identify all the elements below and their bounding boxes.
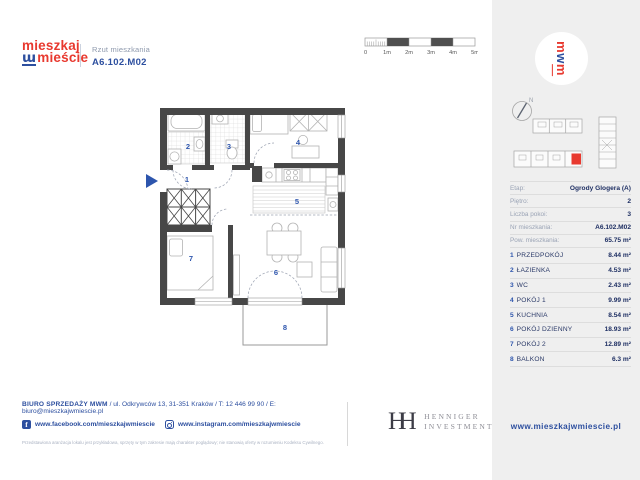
brand-w-glyph: ɯ	[22, 53, 36, 66]
room-number: 5	[295, 197, 299, 206]
room-row-number: 5	[510, 312, 514, 319]
developer-name-line1: HENNIGER	[424, 412, 494, 422]
room-number: 1	[185, 175, 189, 184]
room-row-number: 1	[510, 252, 514, 259]
hall-wardrobe	[167, 189, 210, 225]
room-row-number: 7	[510, 341, 514, 348]
sidebar: mwm N	[492, 0, 640, 480]
info-row: Liczba pokoi:3	[510, 208, 631, 221]
scale-bar: 0 1m 2m 3m 4m 5m	[362, 36, 478, 58]
page: mieszkaj ɯmieście Rzut mieszkania A6.102…	[0, 0, 640, 480]
room-row-number: 8	[510, 356, 514, 363]
henniger-monogram: HH	[388, 409, 417, 434]
room-row-number: 3	[510, 282, 514, 289]
scale-label: 1m	[383, 50, 391, 56]
developer-name: HENNIGER INVESTMENT	[424, 412, 494, 431]
mwm-letter-w: w	[554, 53, 569, 64]
info-label: Piętro:	[510, 198, 528, 205]
mwm-letter-m1: m	[554, 41, 569, 53]
room-row-area: 18.93 m²	[605, 326, 631, 333]
facebook-icon[interactable]: f	[22, 420, 31, 429]
mwm-logo: mwm	[535, 32, 588, 85]
room-number: 2	[186, 142, 190, 151]
room-row-name: ŁAZIENKA	[517, 267, 609, 274]
room-row-area: 8.44 m²	[608, 252, 631, 259]
compass-icon: N	[513, 98, 534, 121]
facebook-link[interactable]: www.facebook.com/mieszkajwmiescie	[35, 421, 155, 428]
location-map: N	[497, 90, 633, 174]
rooms-table: 1PRZEDPOKÓJ8.44 m²2ŁAZIENKA4.53 m²3WC2.4…	[510, 249, 631, 367]
room-row: 8BALKON6.3 m²	[510, 352, 631, 367]
scale-bar-labels: 0 1m 2m 3m 4m 5m	[364, 50, 478, 56]
instagram-icon[interactable]	[165, 420, 174, 429]
room-row: 3WC2.43 m²	[510, 279, 631, 294]
room-number: 6	[274, 268, 278, 277]
info-label: Liczba pokoi:	[510, 211, 547, 218]
footer-divider	[347, 402, 348, 446]
brand-logo-line2: ɯmieście	[22, 52, 88, 66]
website-link[interactable]: www.mieszkajwmiescie.pl	[492, 422, 640, 431]
room-row-area: 4.53 m²	[608, 267, 631, 274]
info-row: Piętro:2	[510, 195, 631, 208]
social-links: f www.facebook.com/mieszkajwmiescie www.…	[22, 420, 301, 429]
apartment-location-marker	[572, 154, 582, 165]
room-row: 6POKÓJ DZIENNY18.93 m²	[510, 323, 631, 338]
info-row: Nr mieszkania:A6.102.M02	[510, 222, 631, 235]
room-number: 3	[227, 142, 231, 151]
building-plan-minimap	[514, 117, 616, 168]
room-number: 8	[283, 323, 287, 332]
room-row-number: 4	[510, 297, 514, 304]
header-divider	[80, 44, 81, 67]
instagram-link[interactable]: www.instagram.com/mieszkajwmiescie	[178, 421, 301, 428]
developer-name-line2: INVESTMENT	[424, 422, 494, 432]
floor-plan: 1 2 3 4 5 6 7 8	[128, 90, 362, 360]
entrance-arrow-icon	[146, 174, 158, 188]
info-value: 3	[627, 211, 631, 218]
info-table: Etap:Ogrody Glogera (A)Piętro:2Liczba po…	[510, 181, 631, 248]
info-row: Etap:Ogrody Glogera (A)	[510, 182, 631, 195]
compass-north-label: N	[529, 98, 533, 104]
info-label: Nr mieszkania:	[510, 224, 552, 231]
room-row: 7POKÓJ 212.89 m²	[510, 338, 631, 353]
info-value: 2	[627, 198, 631, 205]
info-value: 65.75 m²	[605, 237, 631, 244]
room-row: 1PRZEDPOKÓJ8.44 m²	[510, 249, 631, 264]
scale-label: 4m	[449, 50, 457, 56]
mwm-logo-letters: mwm	[557, 41, 566, 76]
room-row-name: WC	[517, 282, 609, 289]
room-row: 2ŁAZIENKA4.53 m²	[510, 264, 631, 279]
room-row-area: 9.99 m²	[608, 297, 631, 304]
mwm-letter-m2: m	[552, 64, 569, 76]
room-row-name: POKÓJ DZIENNY	[517, 326, 605, 333]
room-row-name: KUCHNIA	[517, 312, 609, 319]
scale-label: 2m	[405, 50, 413, 56]
sales-office-contact: BIURO SPRZEDAŻY MWM / ul. Odkrywców 13, …	[22, 401, 352, 415]
apartment-id: A6.102.M02	[92, 57, 150, 68]
room-row-number: 2	[510, 267, 514, 274]
room-row-area: 2.43 m²	[608, 282, 631, 289]
room-row-number: 6	[510, 326, 514, 333]
legal-disclaimer: Przedstawiona aranżacja lokalu jest przy…	[22, 440, 342, 445]
room-row-area: 6.3 m²	[612, 356, 631, 363]
room-row: 5KUCHNIA8.54 m²	[510, 308, 631, 323]
info-label: Pow. mieszkania:	[510, 237, 559, 244]
room-number: 7	[189, 254, 193, 263]
scale-label: 0	[364, 50, 367, 56]
room-row: 4POKÓJ 19.99 m²	[510, 293, 631, 308]
scale-bar-segments	[365, 38, 475, 46]
room-row-name: BALKON	[517, 356, 612, 363]
scale-label: 3m	[427, 50, 435, 56]
brand-logo: mieszkaj ɯmieście	[22, 40, 88, 66]
sales-office-name: BIURO SPRZEDAŻY MWM	[22, 401, 108, 408]
document-title: Rzut mieszkania A6.102.M02	[92, 45, 150, 68]
scale-label: 5m	[471, 50, 478, 56]
room-row-name: POKÓJ 1	[517, 297, 609, 304]
document-type-label: Rzut mieszkania	[92, 45, 150, 54]
info-label: Etap:	[510, 185, 525, 192]
info-row: Pow. mieszkania:65.75 m²	[510, 235, 631, 248]
room-row-name: PRZEDPOKÓJ	[517, 252, 609, 259]
room-row-area: 8.54 m²	[608, 312, 631, 319]
room-row-area: 12.89 m²	[605, 341, 631, 348]
info-value: A6.102.M02	[595, 224, 631, 231]
developer-logo: HH HENNIGER INVESTMENT	[388, 409, 494, 434]
info-value: Ogrody Glogera (A)	[570, 185, 631, 192]
room-row-name: POKÓJ 2	[517, 341, 605, 348]
